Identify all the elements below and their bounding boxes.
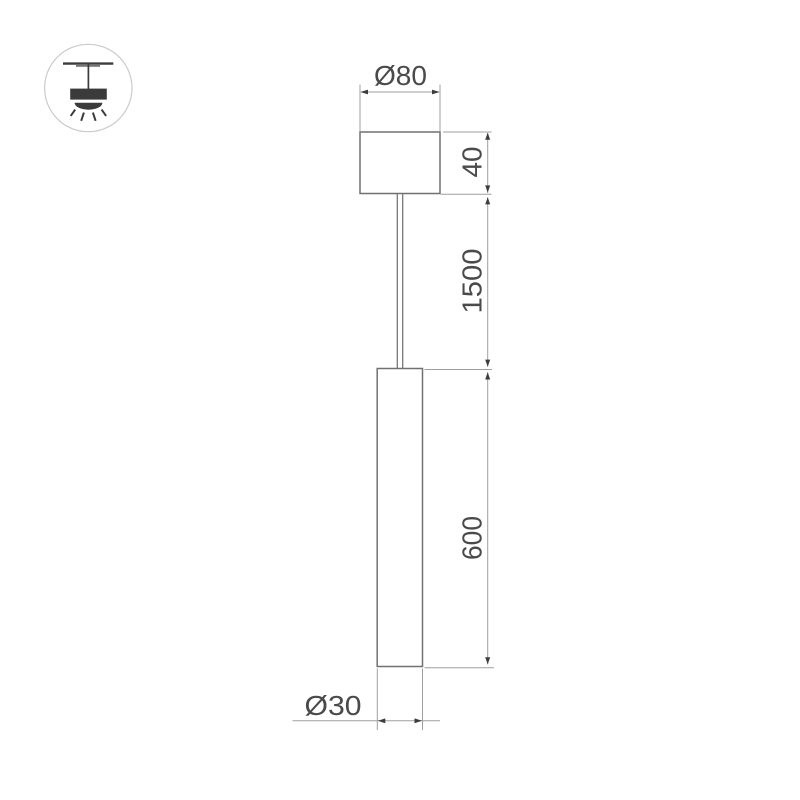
svg-text:600: 600 [457,516,488,560]
svg-text:1500: 1500 [457,249,488,314]
svg-text:Ø80: Ø80 [374,60,427,91]
svg-text:Ø30: Ø30 [305,690,362,721]
svg-text:40: 40 [457,147,488,178]
